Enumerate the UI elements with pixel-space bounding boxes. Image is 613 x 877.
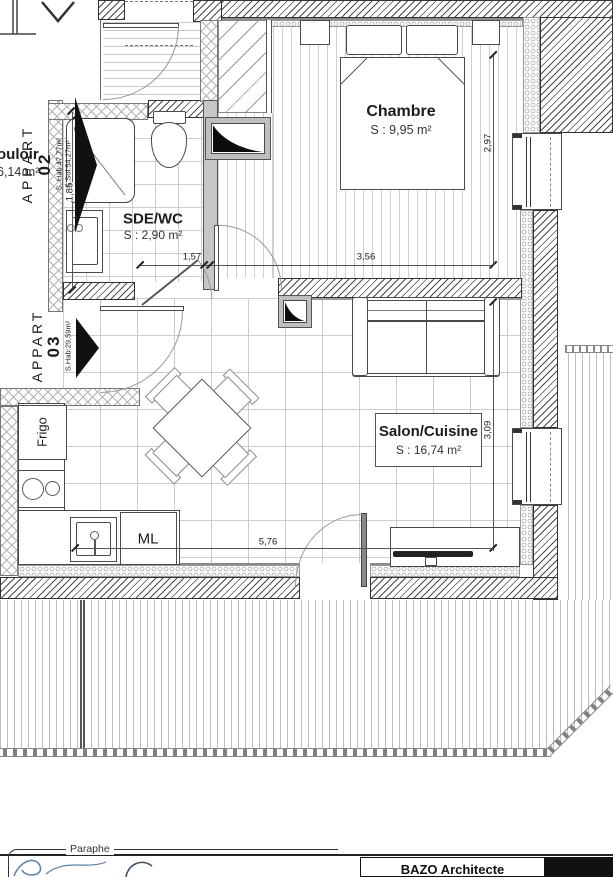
- corridor-dashed-line-top: [125, 1, 193, 2]
- duct-wedge-icon: [212, 124, 264, 153]
- washing-machine-label: ML: [138, 531, 159, 548]
- bedroom-window-cap-top: [513, 134, 522, 138]
- closet: [218, 20, 270, 113]
- salon-window: [512, 428, 562, 505]
- chambre-area: S : 9,95 m²: [370, 123, 431, 137]
- salon-window-shutter-dash: [550, 432, 551, 502]
- corridor-pillar-right: [193, 0, 222, 22]
- dim-line-salon-width: [75, 548, 493, 549]
- apt02-sol: S.Sol:54,27m²: [64, 140, 73, 188]
- chambre-title: Chambre: [366, 103, 435, 121]
- apt02-entrance-arrow-icon: [75, 97, 97, 233]
- sde-door-leaf: [142, 260, 198, 305]
- sofa-back-line: [427, 310, 484, 311]
- duct-box-sde-inner: [211, 123, 265, 154]
- dim-chambre-depth: 2,97: [483, 134, 494, 153]
- sofa-seat-right: [426, 321, 485, 374]
- duct-wedge-icon: [284, 301, 306, 322]
- terrace-main-deck: [0, 600, 613, 748]
- bedroom-window-shutter-dash: [550, 137, 551, 207]
- top-right-insulation: [523, 17, 540, 133]
- vestibule-left-line: [100, 20, 101, 100]
- nightstand-left: [300, 20, 330, 45]
- sofa-back-line: [368, 310, 426, 311]
- bottom-wall-left: [0, 577, 300, 599]
- vanity-knob-1: [67, 224, 75, 232]
- sofa-back-left: [367, 300, 427, 321]
- right-wall-mid: [533, 210, 558, 428]
- duct-box-sde: [205, 117, 271, 160]
- sofa-seat-left: [367, 321, 427, 374]
- bedroom-window: [512, 133, 562, 210]
- bed-pillow-right: [406, 25, 458, 55]
- corridor-pillar-left: [98, 0, 125, 20]
- salon-window-glazing: [526, 432, 531, 502]
- dim-sde-width: 1,57: [183, 252, 202, 263]
- bedroom-window-glazing: [526, 137, 531, 207]
- right-insulation-mid: [520, 210, 533, 428]
- sde-title: SDE/WC: [123, 211, 183, 228]
- bed-pillow-left: [346, 25, 402, 55]
- right-insulation-low: [520, 505, 533, 565]
- salon-area: S : 16,74 m²: [396, 443, 461, 457]
- sofa-back-right: [426, 300, 485, 321]
- dim-line-horizontal-mid: [140, 265, 493, 266]
- bottom-wall-right: [370, 577, 558, 599]
- duct-box-salon: [278, 295, 312, 328]
- apt03-entrance-arrow-icon: [76, 318, 99, 378]
- salon-label-box: Salon/Cuisine S : 16,74 m²: [375, 413, 482, 467]
- terrace-divider: [80, 600, 85, 748]
- floor-plan: Frigo ML 1,57 3,56 2,97 3: [0, 0, 613, 877]
- apt02-title: APPART: [19, 125, 35, 204]
- sde-left-wall: [48, 100, 63, 312]
- tv-console: [390, 527, 520, 567]
- burner-large: [22, 478, 44, 500]
- apt03-title: APPART: [29, 310, 45, 383]
- terrace-rail-bottom: [0, 748, 553, 757]
- signature: [6, 856, 166, 877]
- bottom-insulation-left: [18, 565, 300, 577]
- bedroom-window-cap-bottom: [513, 205, 522, 209]
- fridge-label: Frigo: [35, 417, 50, 447]
- apt03-hab: S.Hab:29,59m²: [64, 321, 73, 371]
- bed-fold-lines: [340, 57, 465, 87]
- apt02-number: 02: [35, 153, 55, 176]
- sofa-armrest-right: [484, 297, 500, 376]
- terrace-side-rail: [565, 345, 613, 353]
- sofa-armrest-left: [352, 297, 368, 376]
- faucet: [90, 531, 99, 540]
- paraphe-label: Paraphe: [66, 843, 114, 855]
- nightstand-right: [472, 20, 500, 45]
- top-right-corner-wall: [540, 17, 613, 133]
- dim-salon-width: 5,76: [257, 537, 280, 548]
- sde-area: S : 2,90 m²: [124, 228, 183, 242]
- down-arrow-icon: [42, 2, 74, 21]
- architect-name: BAZO Architecte: [401, 862, 505, 877]
- closet-divider: [266, 20, 272, 113]
- salon-title: Salon/Cuisine: [379, 423, 478, 440]
- entry-right-wall: [200, 20, 218, 102]
- salon-window-cap-top: [513, 429, 522, 433]
- titleblock-black-box: [545, 857, 613, 877]
- salon-window-cap-bottom: [513, 500, 522, 504]
- duct-box-salon-inner: [283, 300, 307, 323]
- architect-box: BAZO Architecte: [360, 857, 545, 877]
- dim-salon-depth: 3,09: [483, 421, 494, 440]
- chambre-bottom-wall: [278, 278, 522, 298]
- apt03-number: 03: [44, 335, 64, 358]
- stair-fragment: [0, 0, 90, 40]
- dim-line-chambre-depth: [493, 55, 494, 265]
- kitchen-left-wall: [0, 406, 18, 576]
- terrace-side-deck: [568, 353, 613, 600]
- apt02-hab: S. Hab:47,77m²: [55, 138, 64, 191]
- sde-bottom-wall: [63, 282, 135, 300]
- tv-stand: [425, 557, 437, 566]
- dim-chambre-width: 3,56: [357, 252, 376, 263]
- top-wall: [195, 0, 613, 18]
- burner-small: [45, 481, 60, 496]
